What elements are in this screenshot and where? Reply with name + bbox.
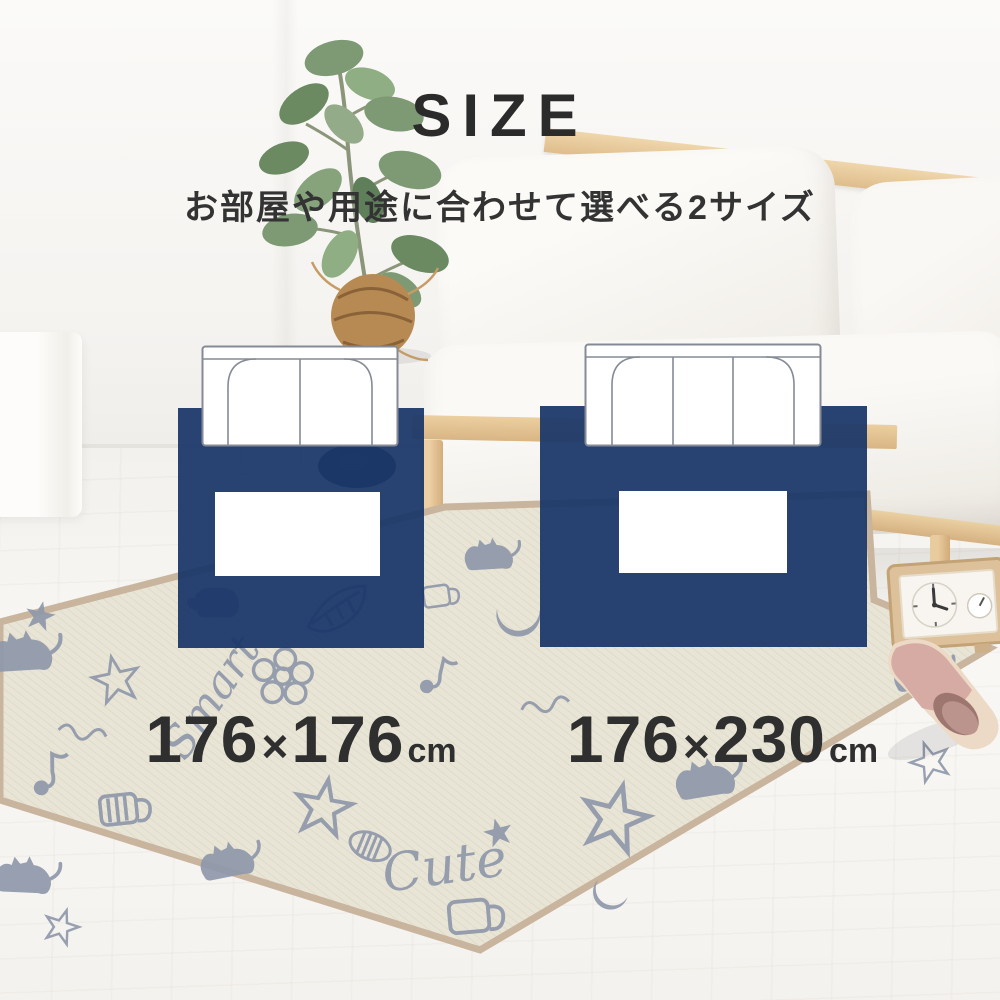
- multiply-sign: ×: [683, 723, 710, 769]
- plant-leaves: [254, 34, 454, 315]
- size-a-unit: cm: [407, 734, 456, 768]
- table-rectangle-wide-diagram: [619, 491, 787, 573]
- page-title: SIZE: [0, 86, 1000, 146]
- product-size-infographic: Smart Cute: [0, 0, 1000, 1000]
- size-b-depth: 230: [713, 706, 826, 772]
- multiply-sign: ×: [261, 723, 288, 769]
- size-b-unit: cm: [829, 734, 878, 768]
- size-label-176x176: 176×176cm: [140, 706, 462, 772]
- size-label-176x230: 176×230cm: [560, 706, 885, 772]
- sofa-topview-3seat-illustration: [584, 343, 822, 447]
- sofa-topview-2seat-illustration: [201, 345, 399, 447]
- size-a-width: 176: [145, 706, 258, 772]
- curtain: [0, 332, 82, 517]
- size-b-width: 176: [567, 706, 680, 772]
- page-subtitle: お部屋や用途に合わせて選べる2サイズ: [0, 188, 1000, 229]
- table-rectangle-square-diagram: [215, 492, 380, 576]
- size-a-depth: 176: [291, 706, 404, 772]
